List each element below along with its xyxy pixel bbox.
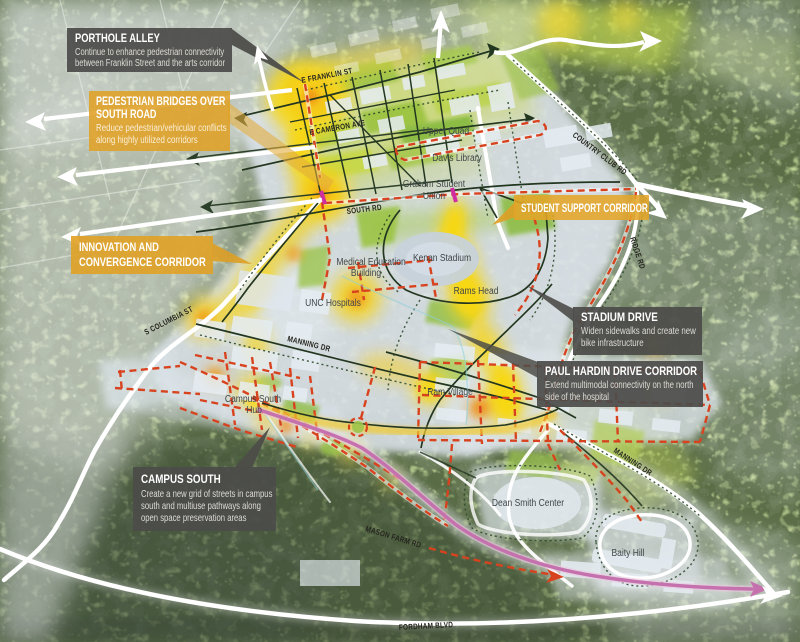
svg-text:Building: Building: [351, 267, 381, 278]
svg-text:Reduce pedestrian/vehicular co: Reduce pedestrian/vehicular conflicts: [96, 122, 227, 133]
svg-text:Union: Union: [423, 190, 445, 201]
svg-text:UNC Hospitals: UNC Hospitals: [305, 297, 361, 308]
svg-text:PEDESTRIAN BRIDGES OVER: PEDESTRIAN BRIDGES OVER: [96, 95, 226, 109]
svg-text:SOUTH ROAD: SOUTH ROAD: [96, 108, 157, 122]
svg-text:STUDENT SUPPORT CORRIDOR: STUDENT SUPPORT CORRIDOR: [521, 203, 648, 216]
svg-text:Dean Smith Center: Dean Smith Center: [492, 497, 564, 508]
svg-text:bike infrastructure: bike infrastructure: [581, 337, 644, 348]
svg-text:Davis Library: Davis Library: [432, 152, 482, 163]
svg-text:CAMPUS SOUTH: CAMPUS SOUTH: [141, 473, 221, 486]
svg-text:Create a new grid of streets i: Create a new grid of streets in campus: [141, 488, 273, 499]
svg-text:Baity Hill: Baity Hill: [611, 547, 644, 558]
svg-text:Ram Village: Ram Village: [427, 386, 473, 397]
svg-text:STADIUM DRIVE: STADIUM DRIVE: [581, 311, 658, 324]
svg-text:south and multiuse pathways al: south and multiuse pathways along: [141, 500, 261, 511]
svg-text:Rams Head: Rams Head: [454, 285, 499, 296]
svg-text:along highly utilized corridor: along highly utilized corridors: [96, 134, 198, 145]
svg-text:open space preservation areas: open space preservation areas: [141, 512, 247, 523]
svg-text:Continue to enhance pedestrian: Continue to enhance pedestrian connectiv…: [75, 46, 225, 57]
svg-text:side of the hospital: side of the hospital: [545, 391, 609, 402]
svg-text:Campus South: Campus South: [225, 393, 281, 404]
svg-text:INNOVATION AND: INNOVATION AND: [79, 241, 159, 254]
svg-text:Hub: Hub: [246, 404, 262, 415]
svg-text:Widen sidewalks and create new: Widen sidewalks and create new: [581, 325, 696, 336]
svg-text:PORTHOLE ALLEY: PORTHOLE ALLEY: [75, 32, 160, 45]
svg-text:Medical Education: Medical Education: [336, 256, 405, 267]
svg-text:CONVERGENCE CORRIDOR: CONVERGENCE CORRIDOR: [79, 256, 206, 269]
svg-text:PAUL HARDIN DRIVE CORRIDOR: PAUL HARDIN DRIVE CORRIDOR: [545, 365, 697, 378]
svg-text:Kenan Stadium: Kenan Stadium: [413, 252, 471, 263]
svg-text:Graham Student: Graham Student: [403, 178, 466, 189]
svg-text:Extend multimodal connectivity: Extend multimodal connectivity on the no…: [545, 379, 693, 390]
svg-text:Upper Quad: Upper Quad: [423, 125, 469, 136]
svg-text:between Franklin Street and th: between Franklin Street and the arts cor…: [75, 57, 225, 68]
